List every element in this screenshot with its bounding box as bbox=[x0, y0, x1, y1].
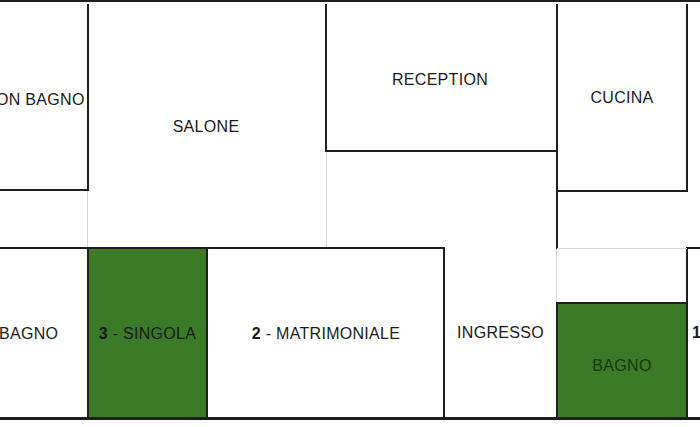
room-number-camera-right: 1 bbox=[692, 324, 700, 341]
room-label-salone: SALONE bbox=[106, 117, 306, 136]
wall-conbagno-right bbox=[87, 4, 89, 191]
line-anteroom-left bbox=[556, 249, 557, 303]
floorplan: ON BAGNO SALONE RECEPTION CUCINA BAGNO 3… bbox=[0, 0, 700, 427]
wall-center-vertical bbox=[556, 4, 558, 249]
room-label-ingresso: INGRESSO bbox=[444, 323, 557, 342]
wall-cucina-bottom bbox=[556, 190, 688, 192]
wall-reception-bottom bbox=[325, 150, 558, 152]
room-label-matrimoniale: 2 - MATRIMONIALE bbox=[208, 324, 444, 343]
room-label-cucina: CUCINA bbox=[522, 88, 700, 107]
line-below-reception bbox=[326, 152, 327, 247]
room-label-bagno-verde: BAGNO bbox=[556, 356, 688, 375]
wall-conbagno-bottom bbox=[0, 189, 89, 191]
room-name-matrimoniale: - MATRIMONIALE bbox=[261, 325, 400, 342]
room-label-bagno-left: BAGNO bbox=[0, 324, 58, 343]
room-label-camera-right: 1 bbox=[692, 323, 700, 342]
wall-camera1-top bbox=[686, 247, 700, 249]
room-name-singola: - SINGOLA bbox=[108, 325, 196, 342]
room-label-reception: RECEPTION bbox=[340, 70, 540, 89]
wall-top-border bbox=[0, 0, 700, 2]
line-anteroom-top bbox=[557, 248, 687, 249]
wall-bedrooms-top bbox=[0, 247, 445, 249]
room-number-singola: 3 bbox=[99, 325, 108, 342]
room-number-matrimoniale: 2 bbox=[252, 325, 261, 342]
wall-reception-left bbox=[325, 4, 327, 152]
room-label-singola: 3 - SINGOLA bbox=[87, 324, 208, 343]
room-label-con-bagno: ON BAGNO bbox=[0, 90, 85, 109]
line-below-conbagno bbox=[87, 191, 88, 247]
